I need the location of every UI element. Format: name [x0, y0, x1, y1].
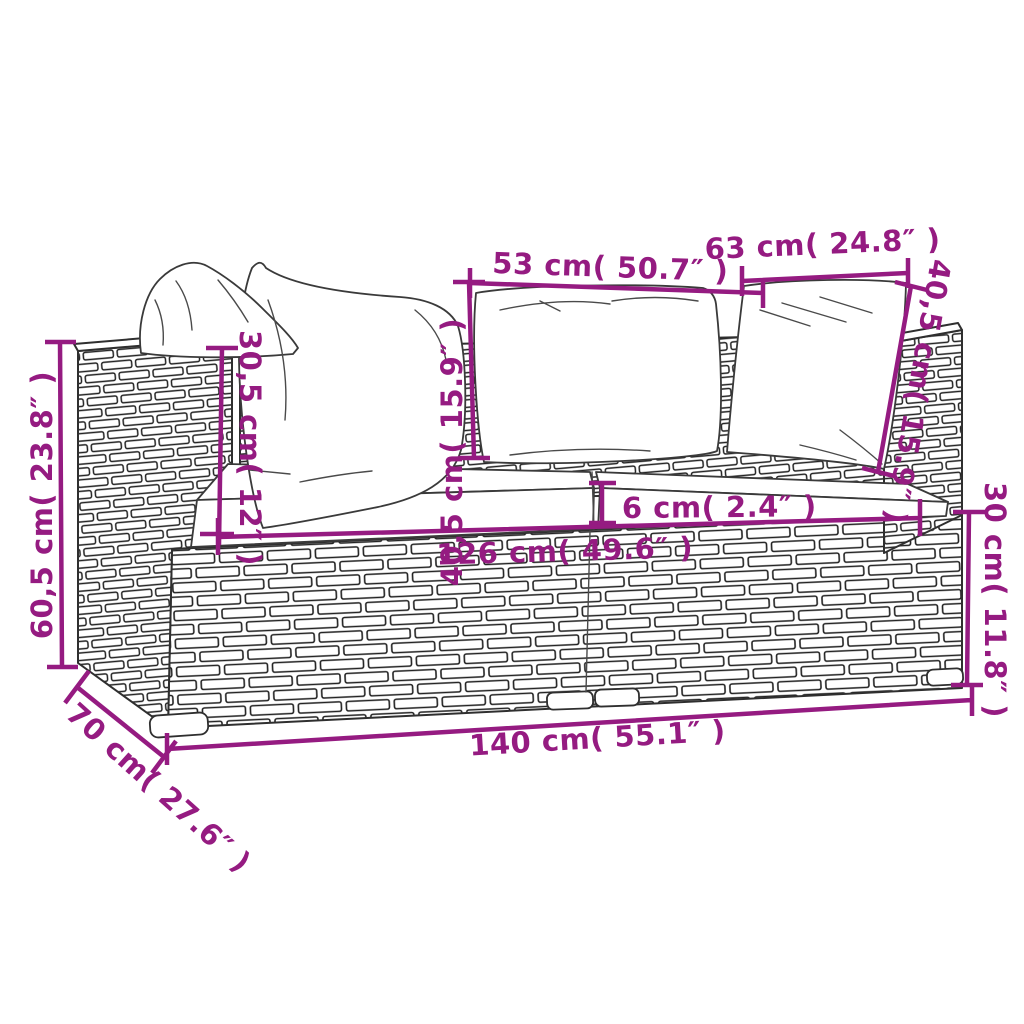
corner-back-pillow [239, 263, 465, 528]
dim-label-base-height: 30 cm( 11.8″ ) [978, 482, 1012, 718]
back-pillow-middle [474, 285, 721, 463]
sofa-foot [595, 688, 640, 707]
sofa-foot [547, 691, 594, 710]
back-pillow-right [727, 280, 906, 469]
sofa-dimension-diagram: 53 cm( 50.7″ ) 63 cm( 24.8″ ) 40,5 cm( 1… [0, 0, 1024, 1024]
dim-label-inner-width: 126 cm( 49.6″ ) [436, 530, 694, 571]
dim-label-overall-height: 60,5 cm( 23.8″ ) [25, 371, 59, 639]
dim-label-back-width-right: 63 cm( 24.8″ ) [704, 222, 941, 266]
dim-label-armrest-height: 30,5 cm( 12″ ) [233, 330, 267, 566]
dim-label-overall-width: 140 cm( 55.1″ ) [468, 713, 726, 762]
diagram-svg: 53 cm( 50.7″ ) 63 cm( 24.8″ ) 40,5 cm( 1… [0, 0, 1024, 1024]
sofa-drawing [74, 263, 963, 738]
dimension-overall-height: 60,5 cm( 23.8″ ) [25, 342, 78, 667]
sofa-foot [149, 712, 208, 738]
dim-label-back-width-left: 53 cm( 50.7″ ) [492, 246, 729, 288]
